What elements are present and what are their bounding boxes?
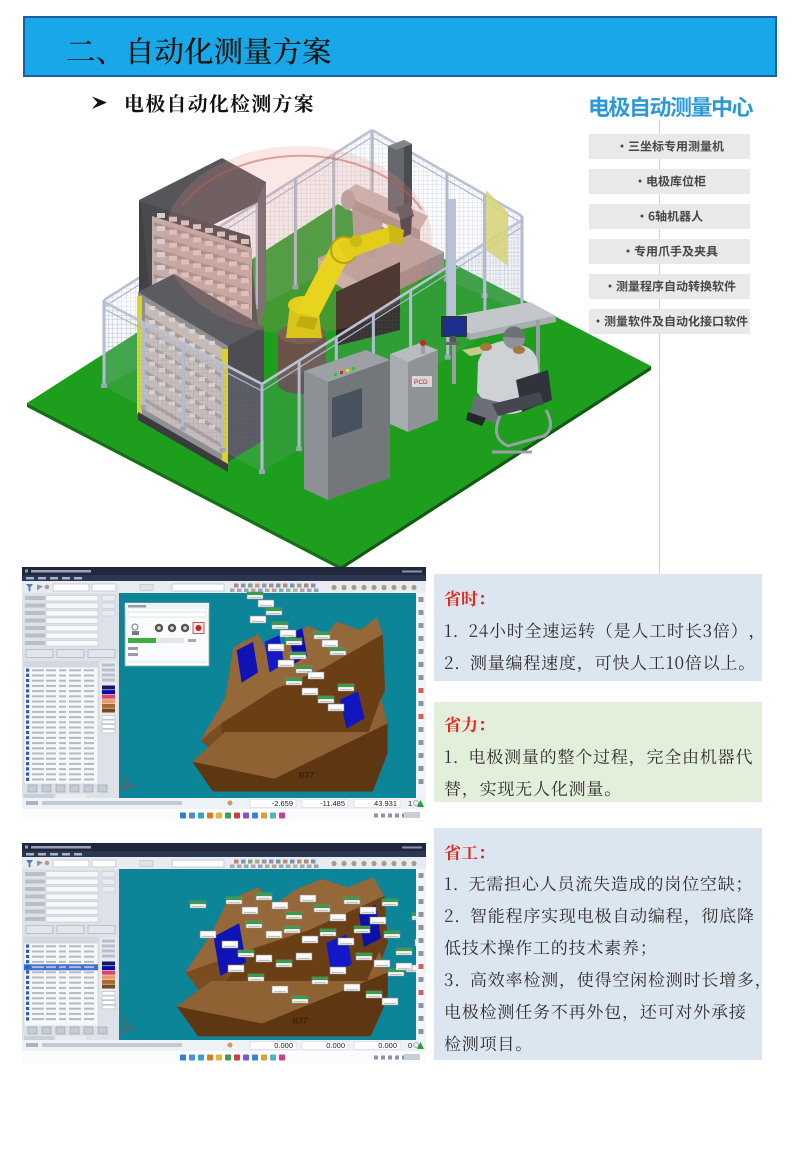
svg-text:PCD: PCD (414, 379, 428, 386)
svg-text:0.000: 0.000 (378, 1041, 397, 1050)
svg-text:B37: B37 (299, 770, 314, 780)
svg-text:0: 0 (408, 1041, 412, 1050)
svg-text:43.931: 43.931 (374, 799, 397, 808)
svg-text:B37: B37 (292, 1016, 308, 1026)
svg-text:1: 1 (408, 799, 412, 808)
svg-text:-11.485: -11.485 (320, 799, 345, 808)
svg-text:0.000: 0.000 (326, 1041, 345, 1050)
svg-text:-2.659: -2.659 (272, 799, 293, 808)
svg-text:0.000: 0.000 (274, 1041, 293, 1050)
